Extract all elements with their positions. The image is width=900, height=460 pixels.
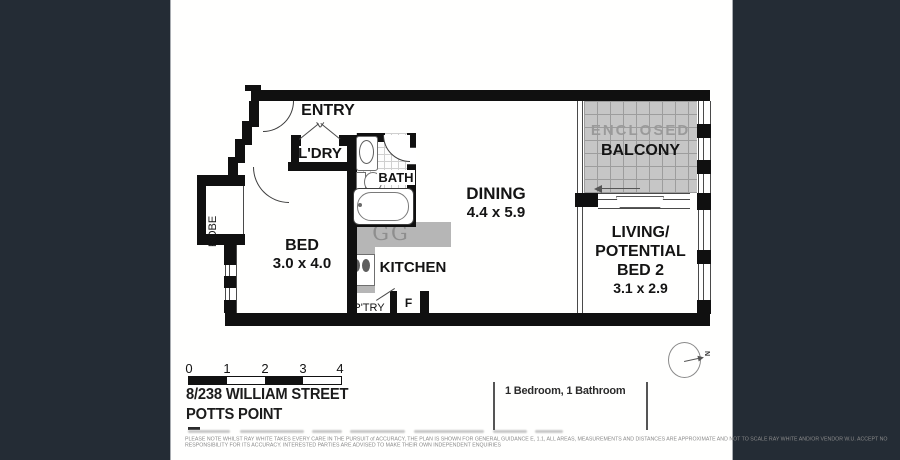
fridge-wall-right <box>420 291 429 313</box>
balcony-arrow-head <box>594 185 602 193</box>
wall-bottom <box>225 313 710 326</box>
kitchen-label: KITCHEN <box>377 259 449 277</box>
balcony-sliding-door <box>616 196 664 208</box>
balcony-label: BALCONY <box>584 142 697 160</box>
scale-tick: 0 <box>182 361 196 376</box>
address-line-2: POTTS POINT <box>186 406 348 424</box>
bed-door-arc <box>253 167 289 203</box>
summary-divider-right <box>646 382 648 430</box>
kitchen-sink-bowl <box>362 259 370 272</box>
living-dims: 3.1 x 2.9 <box>584 281 697 296</box>
fridge-wall-left <box>390 291 397 313</box>
laundry-door-leaf <box>320 123 340 140</box>
right-wall-mullion <box>697 250 711 264</box>
right-wall-mullion <box>697 300 711 314</box>
balcony-partition <box>577 101 578 193</box>
summary-text: 1 Bedroom, 1 Bathroom <box>505 385 626 397</box>
summary-divider-left <box>493 382 495 430</box>
floorplan-drawing: GG ROBE L'DRY <box>0 0 900 460</box>
bed-window-mullion <box>224 300 236 313</box>
balcony-partition <box>582 101 583 193</box>
disclaimer: PLEASE NOTE WHILST RAY WHITE TAKES EVERY… <box>185 436 735 448</box>
bed-label: BED <box>262 237 342 255</box>
entry-door-arc <box>263 101 294 132</box>
scale-tick: 2 <box>258 361 272 376</box>
living-partition <box>582 207 583 313</box>
right-wall-mullion <box>697 193 711 210</box>
address-line-1: 8/238 WILLIAM STREET <box>186 386 348 404</box>
entry-label: ENTRY <box>299 102 357 119</box>
wall-top-step <box>251 85 259 101</box>
bath-sink-basin <box>359 140 374 164</box>
living-partition <box>577 207 578 313</box>
balcony-label-enclosed: ENCLOSED <box>584 123 697 139</box>
floorplan-page: GG ROBE L'DRY <box>0 0 900 460</box>
compass: N <box>660 338 720 384</box>
bed-window-mullion <box>224 245 236 265</box>
pantry-label: P'TRY <box>349 302 389 315</box>
fridge-label: F <box>398 296 419 310</box>
blurred-text-line <box>188 430 568 435</box>
bathtub-tap <box>358 203 362 207</box>
disclaimer-line-2: RESPONSIBILITY FOR ITS ACCURACY. INTERES… <box>185 442 735 448</box>
wall-top <box>257 90 710 101</box>
dining-label: DINING <box>450 185 542 203</box>
laundry-label: L'DRY <box>297 145 343 162</box>
dining-dims: 4.4 x 5.9 <box>450 204 542 221</box>
living-label-2: POTENTIAL <box>584 243 697 260</box>
bathtub-basin <box>357 192 409 221</box>
scale-tick: 3 <box>296 361 310 376</box>
balcony-corner-block <box>575 193 600 207</box>
bath-label: BATH <box>377 170 415 185</box>
compass-north-label: N <box>703 351 710 356</box>
scale-bar-strip <box>188 376 342 385</box>
balcony-arrow <box>600 188 640 189</box>
laundry-wall-bottom <box>288 162 357 171</box>
scale-tick: 1 <box>220 361 234 376</box>
robe-door-line <box>243 186 244 234</box>
bed-window-mullion <box>224 276 236 288</box>
living-label-3: BED 2 <box>584 262 697 279</box>
bed-dims: 3.0 x 4.0 <box>262 256 342 272</box>
scale-tick: 4 <box>333 361 347 376</box>
address-block: 8/238 WILLIAM STREET POTTS POINT <box>186 386 348 424</box>
living-label-1: LIVING/ <box>584 224 697 241</box>
right-wall-mullion <box>697 124 711 138</box>
right-wall-mullion <box>697 160 711 174</box>
laundry-door-leaf <box>299 123 319 140</box>
